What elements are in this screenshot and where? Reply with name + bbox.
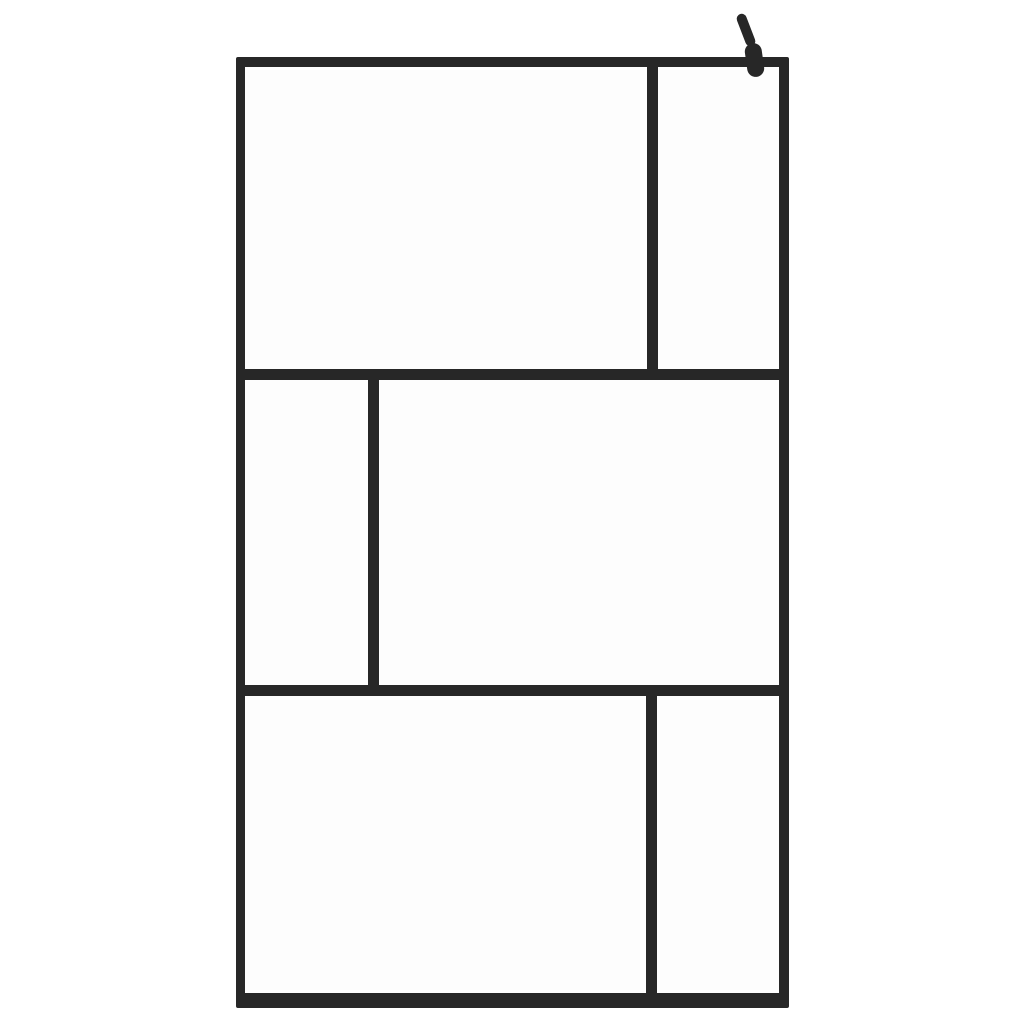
product-photo-canvas xyxy=(0,0,1024,1024)
mullion-horizontal-lower xyxy=(236,685,789,696)
mullion-vertical-bottom-band xyxy=(646,685,657,1008)
shower-screen-outer-frame xyxy=(236,57,789,1008)
mullion-vertical-middle-band xyxy=(368,369,379,696)
mullion-vertical-top-band xyxy=(647,57,658,380)
mullion-horizontal-upper xyxy=(236,369,789,380)
